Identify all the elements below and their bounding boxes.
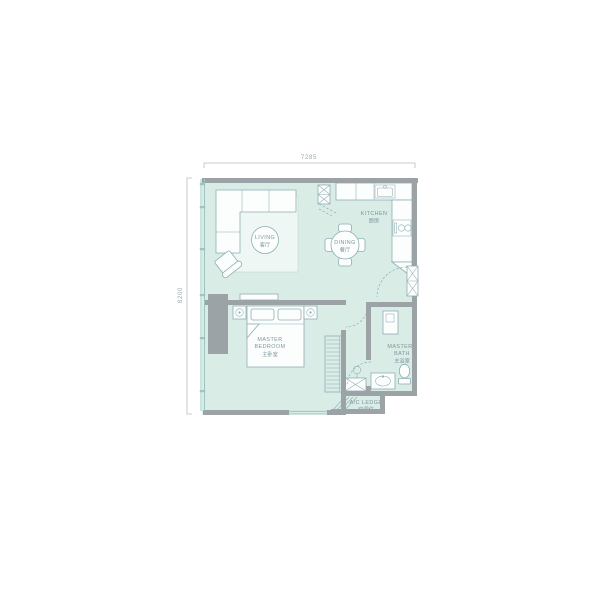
top-wall	[202, 178, 418, 183]
washing-machine	[345, 378, 366, 391]
dim-left-value: 8200	[178, 287, 184, 303]
bedroom-label-1: MASTER	[257, 337, 282, 343]
room-label-living: LIVING 客厅	[252, 227, 279, 254]
duct-shaft-entry	[407, 266, 418, 296]
floor-plan: 7285 8200 LIVING 客厅 DINING 餐厅	[0, 0, 600, 600]
bath-label-1: MASTER	[387, 344, 412, 350]
wardrobe	[325, 336, 342, 392]
pillow-left	[251, 309, 274, 320]
bedroom-east-wall	[341, 330, 346, 415]
bedroom-label-2: BEDROOM	[254, 344, 285, 350]
duct-shaft-kitchen	[318, 185, 330, 204]
bottom-wall-left	[203, 410, 289, 415]
dim-top-value: 7285	[301, 155, 317, 161]
floor-plan-canvas: 7285 8200 LIVING 客厅 DINING 餐厅	[0, 0, 600, 600]
shower-cabinet	[383, 311, 398, 334]
kitchen-label: KITCHEN	[361, 211, 388, 217]
dining-label-zh: 餐厅	[340, 246, 350, 254]
pillow-right	[278, 309, 301, 320]
toilet	[399, 364, 411, 384]
ac-ledge-label: A/C LEDGE	[350, 400, 383, 406]
dim-left: 8200	[178, 178, 192, 414]
bath-label-2: BATH	[394, 351, 410, 357]
nightstand-right	[304, 306, 317, 319]
bedroom-label-zh: 主卧室	[262, 350, 278, 358]
right-wall-upper	[412, 178, 417, 266]
living-label: LIVING	[255, 235, 275, 241]
middle-wall	[204, 300, 346, 305]
dining-label: DINING	[334, 240, 356, 246]
tv-console	[240, 294, 278, 300]
right-wall-lower	[412, 296, 417, 396]
bath-label-zh: 主浴室	[394, 357, 410, 365]
dim-top: 7285	[204, 155, 415, 168]
nightstand-left	[233, 306, 246, 319]
kitchen-label-zh: 厨房	[369, 217, 379, 225]
bottom-wall-right	[327, 410, 346, 415]
bath-bottom-wall	[341, 391, 417, 396]
living-label-zh: 客厅	[260, 241, 270, 249]
bath-north-wall	[366, 302, 417, 307]
vanity-sink	[371, 373, 395, 389]
bath-west-wall	[366, 302, 371, 360]
